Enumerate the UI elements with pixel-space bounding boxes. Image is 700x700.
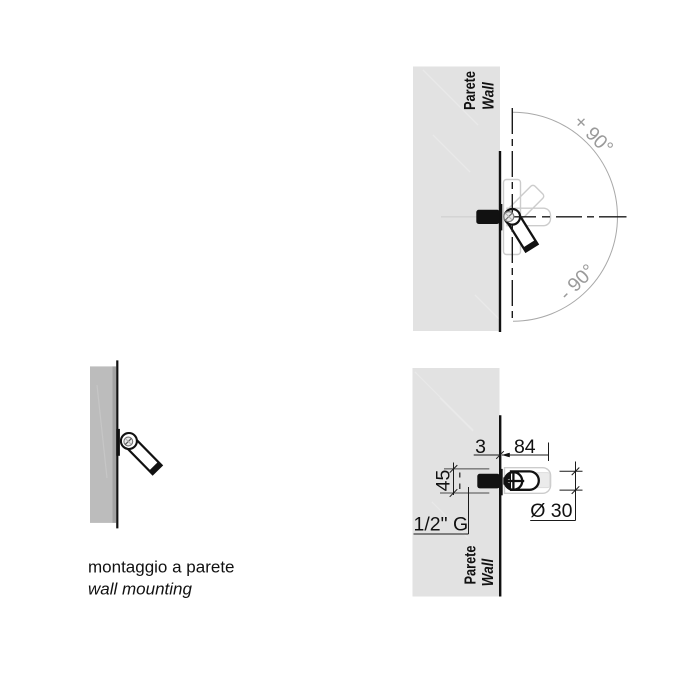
svg-text:45: 45: [433, 470, 455, 492]
svg-text:Parete: Parete: [462, 545, 480, 584]
svg-text:Wall: Wall: [481, 81, 498, 109]
svg-text:wall mounting: wall mounting: [88, 580, 192, 599]
svg-text:+ 90°: + 90°: [569, 111, 617, 159]
svg-text:Ø 30: Ø 30: [530, 500, 572, 522]
svg-text:Parete: Parete: [462, 71, 480, 110]
svg-text:- 90°: - 90°: [555, 260, 600, 305]
svg-text:1/2" G: 1/2" G: [414, 514, 469, 536]
svg-text:montaggio a parete: montaggio a parete: [88, 558, 235, 577]
svg-text:Wall: Wall: [480, 558, 497, 586]
